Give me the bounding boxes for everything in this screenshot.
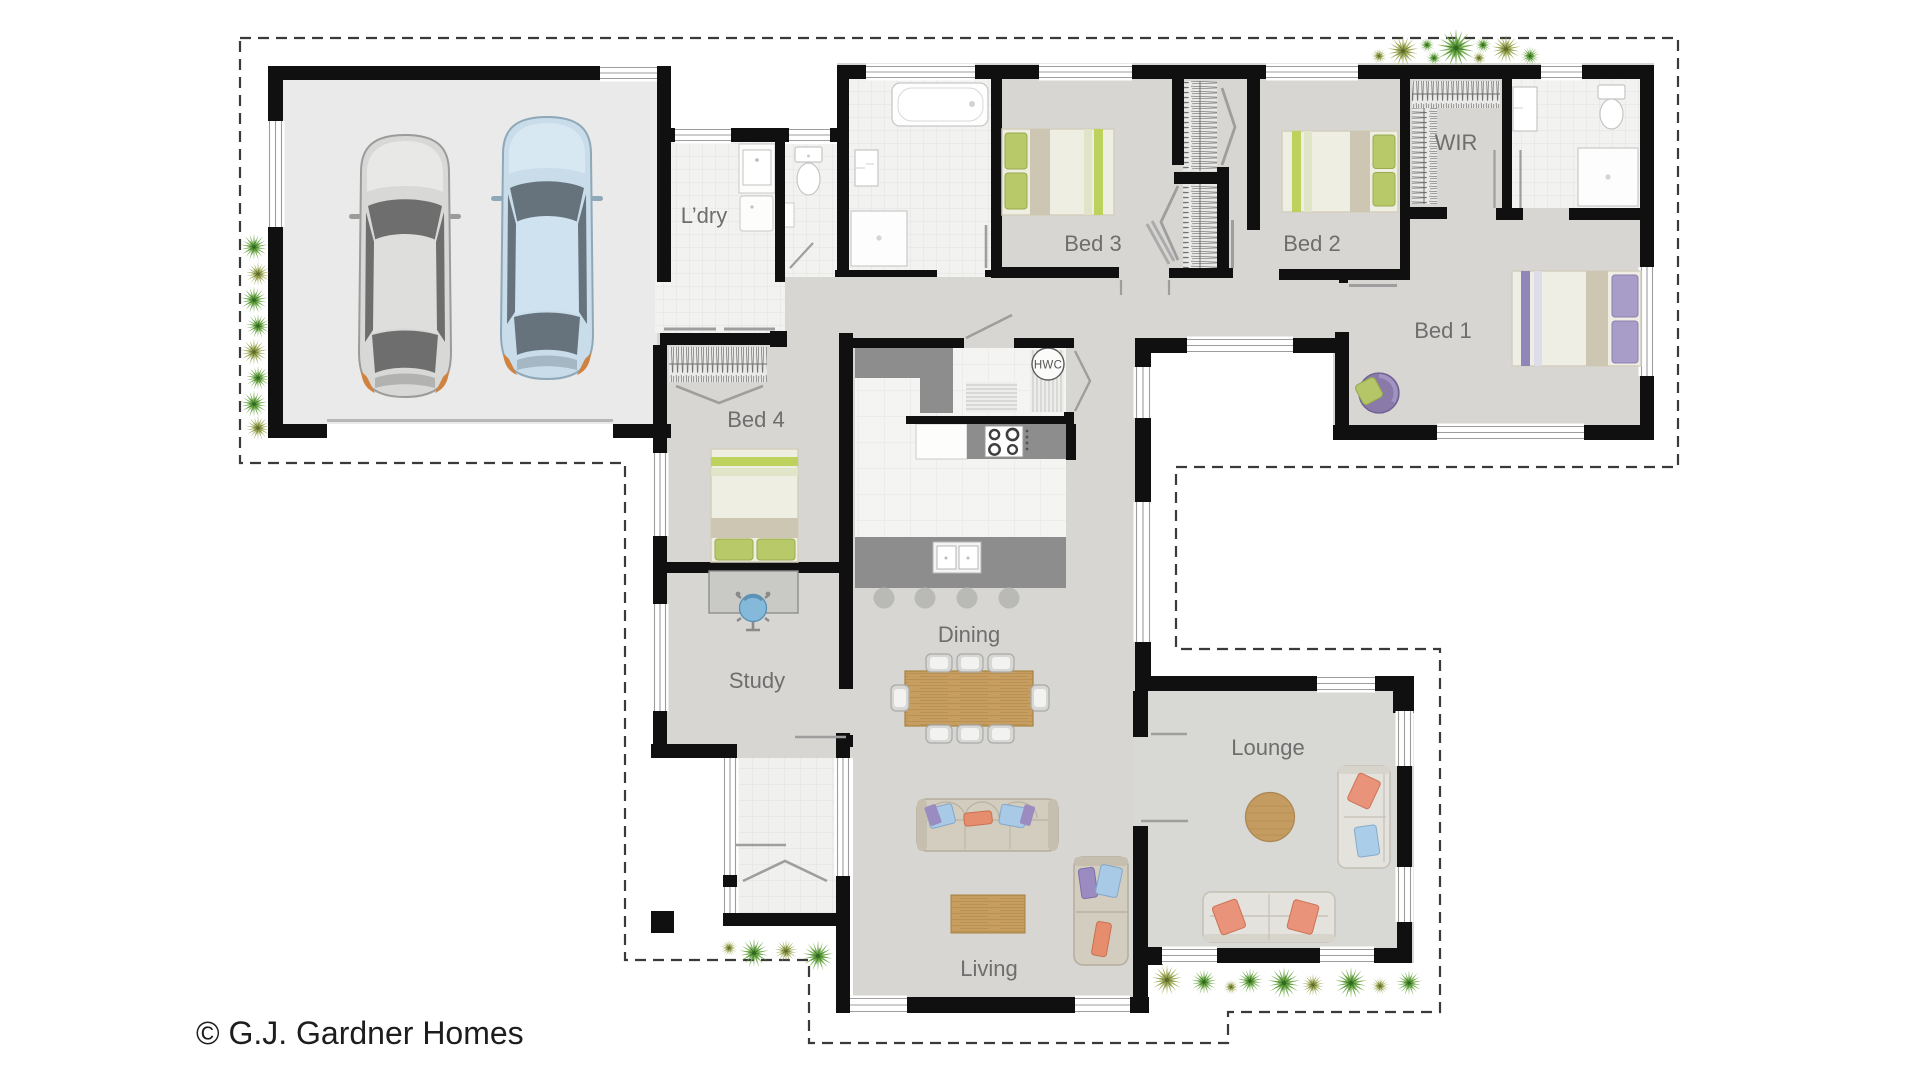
svg-text:Bed 3: Bed 3 bbox=[1064, 231, 1122, 256]
svg-text:Bed 2: Bed 2 bbox=[1283, 231, 1341, 256]
svg-text:Dining: Dining bbox=[938, 622, 1000, 647]
svg-text:WIR: WIR bbox=[1435, 130, 1478, 155]
svg-text:Living: Living bbox=[960, 956, 1017, 981]
svg-text:Bed 4: Bed 4 bbox=[727, 407, 785, 432]
svg-text:Lounge: Lounge bbox=[1231, 735, 1304, 760]
svg-text:Bed 1: Bed 1 bbox=[1414, 318, 1472, 343]
svg-text:Study: Study bbox=[729, 668, 785, 693]
svg-text:© G.J. Gardner Homes: © G.J. Gardner Homes bbox=[196, 1015, 524, 1051]
svg-text:L’dry: L’dry bbox=[681, 203, 727, 228]
svg-text:HWC: HWC bbox=[1034, 360, 1062, 372]
